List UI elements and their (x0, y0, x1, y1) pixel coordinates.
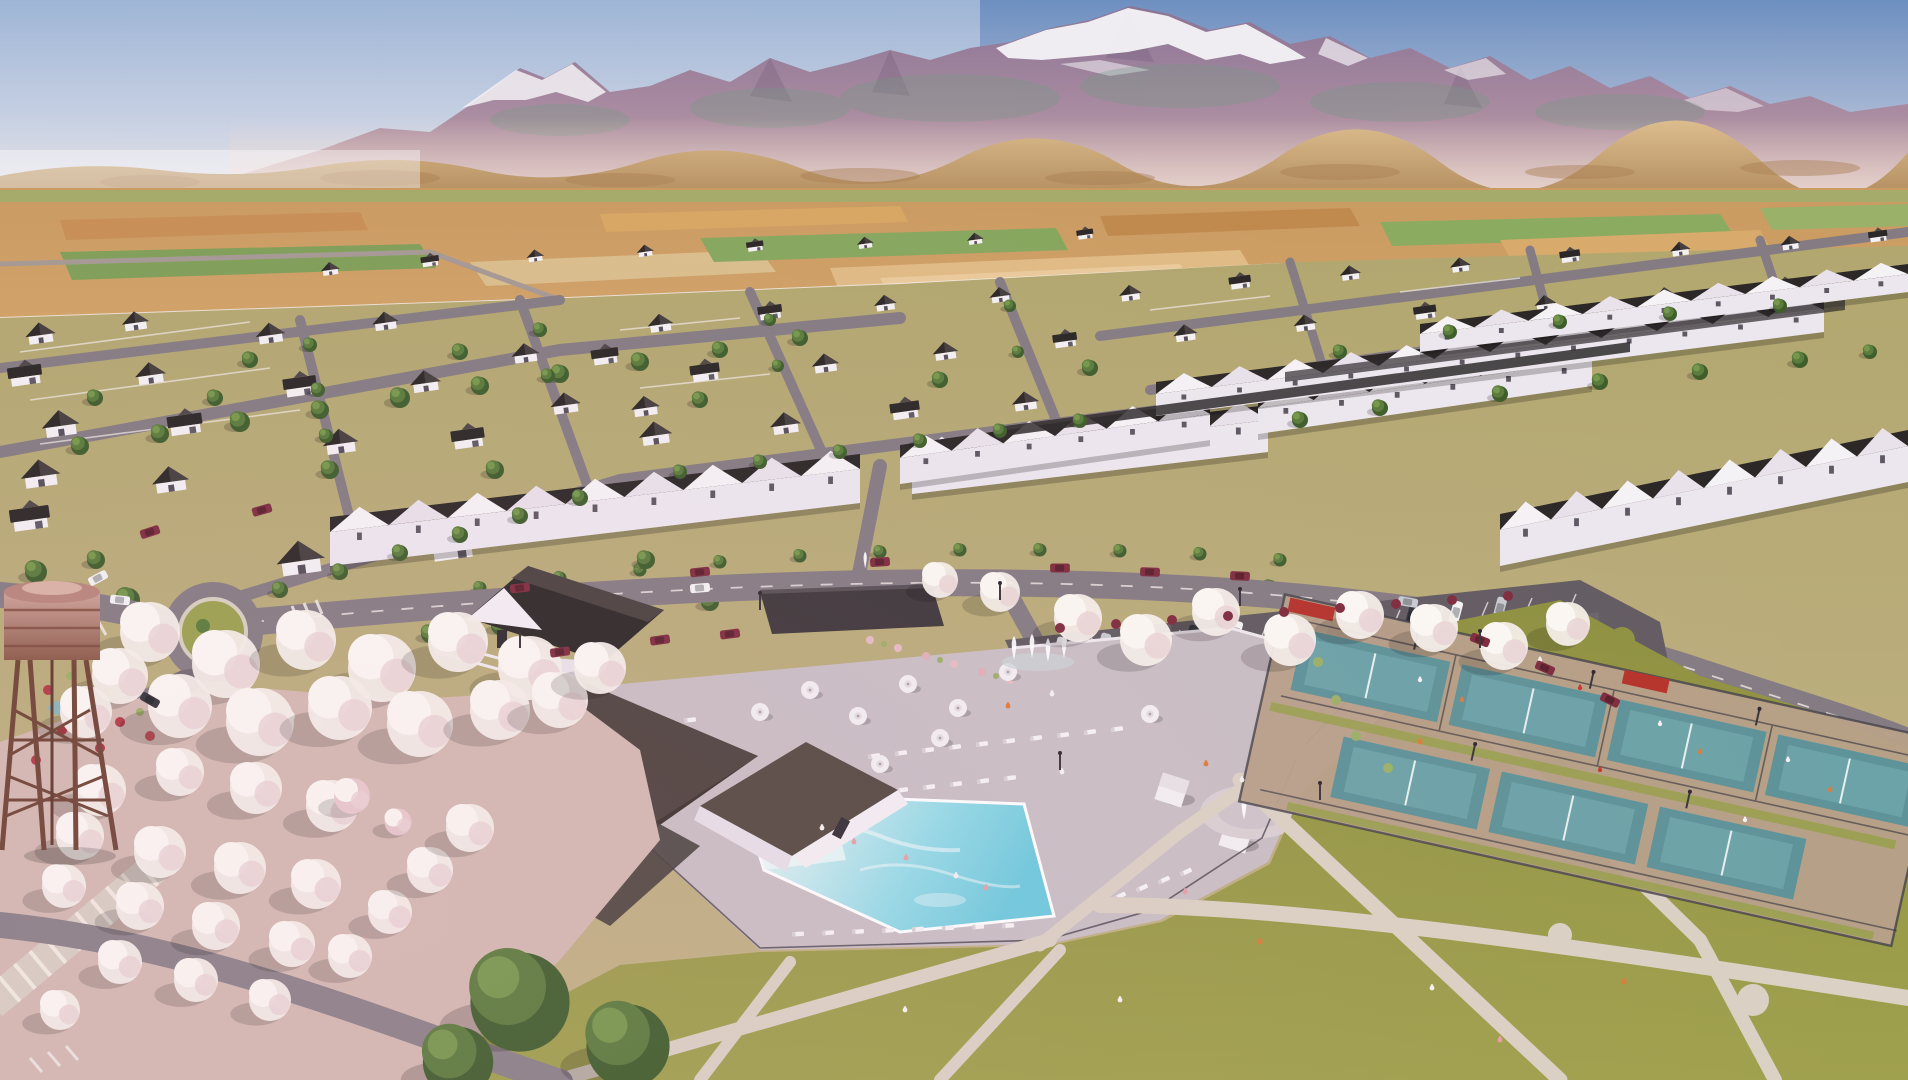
color-grade-overlay (0, 0, 1908, 1080)
rendering-canvas (0, 0, 1908, 1080)
community-aerial-rendering (0, 0, 1908, 1080)
